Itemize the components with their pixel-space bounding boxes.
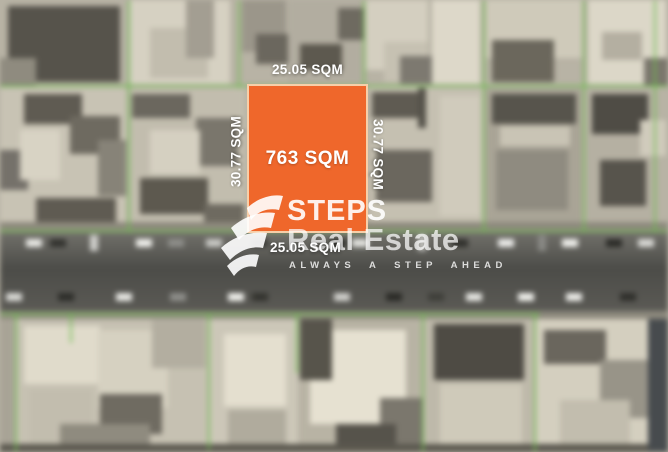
dimension-label-bottom: 25.05 SQM <box>245 240 366 255</box>
parked-car <box>452 239 468 247</box>
parcel-boundary-line <box>534 313 536 452</box>
building-block <box>152 320 206 368</box>
parked-car <box>498 239 514 247</box>
parked-car <box>386 293 402 301</box>
parcel-boundary-line <box>238 0 240 88</box>
building-block <box>140 178 208 214</box>
building-block <box>644 58 668 86</box>
building-block <box>132 94 190 118</box>
parked-car <box>116 293 132 301</box>
building-block <box>544 330 606 364</box>
building-block <box>186 0 214 58</box>
parcel-boundary-line <box>583 0 585 232</box>
parcel-boundary-line <box>128 0 130 232</box>
parked-car <box>50 239 66 247</box>
parked-car <box>58 293 74 301</box>
dimension-label-left: 30.77 SQM <box>229 107 244 197</box>
building-block <box>0 318 14 452</box>
parcel-boundary-line <box>208 313 210 450</box>
building-block <box>500 126 570 146</box>
highlighted-plot: 763 SQM <box>247 84 368 233</box>
building-block <box>228 410 286 446</box>
building-block <box>300 318 332 380</box>
parked-car <box>228 293 244 301</box>
parked-car <box>606 239 622 247</box>
parcel-boundary-line <box>70 313 72 343</box>
building-block <box>640 120 666 156</box>
dimension-label-top: 25.05 SQM <box>247 62 368 77</box>
parked-car <box>206 239 222 247</box>
building-block <box>440 96 480 216</box>
parked-car <box>168 239 184 247</box>
property-listing-map: 763 SQM STEPS Real Estate ALWAYS A STEP … <box>0 0 668 452</box>
building-block <box>434 324 524 380</box>
building-block <box>560 400 630 448</box>
building-block <box>602 32 642 60</box>
parked-car <box>428 293 444 301</box>
building-block <box>496 150 568 210</box>
building-block <box>24 326 100 384</box>
parked-car <box>26 239 42 247</box>
parked-car <box>90 235 98 251</box>
parked-car <box>136 239 152 247</box>
building-block <box>492 94 576 124</box>
building-block <box>492 40 554 82</box>
parked-car <box>620 293 636 301</box>
building-block <box>0 444 648 452</box>
parcel-boundary-line <box>654 0 656 232</box>
parked-car <box>466 293 482 301</box>
building-block <box>648 314 668 452</box>
parcel-boundary-line <box>422 313 424 452</box>
building-block <box>600 160 646 206</box>
parcel-boundary-line <box>483 0 485 232</box>
plot-area-label: 763 SQM <box>266 148 350 170</box>
parked-car <box>638 239 654 247</box>
building-block <box>432 0 480 84</box>
parked-car <box>6 293 22 301</box>
building-block <box>0 58 36 86</box>
building-block <box>338 8 364 40</box>
parked-car <box>252 293 268 301</box>
building-block <box>256 34 290 64</box>
parked-car <box>418 235 426 251</box>
building-block <box>440 384 522 448</box>
parked-car <box>518 293 534 301</box>
building-block <box>150 130 200 174</box>
building-block <box>98 140 126 196</box>
parcel-boundary-line <box>296 313 298 373</box>
building-block <box>224 334 286 406</box>
parked-car <box>538 235 546 251</box>
parked-car <box>170 293 186 301</box>
parcel-boundary-line <box>15 313 17 452</box>
dimension-label-right: 30.77 SQM <box>371 110 386 200</box>
parked-car <box>334 293 350 301</box>
parcel-boundary-line <box>0 313 540 315</box>
building-block <box>418 88 426 128</box>
building-block <box>20 130 60 180</box>
parked-car <box>566 293 582 301</box>
parked-car <box>562 239 578 247</box>
